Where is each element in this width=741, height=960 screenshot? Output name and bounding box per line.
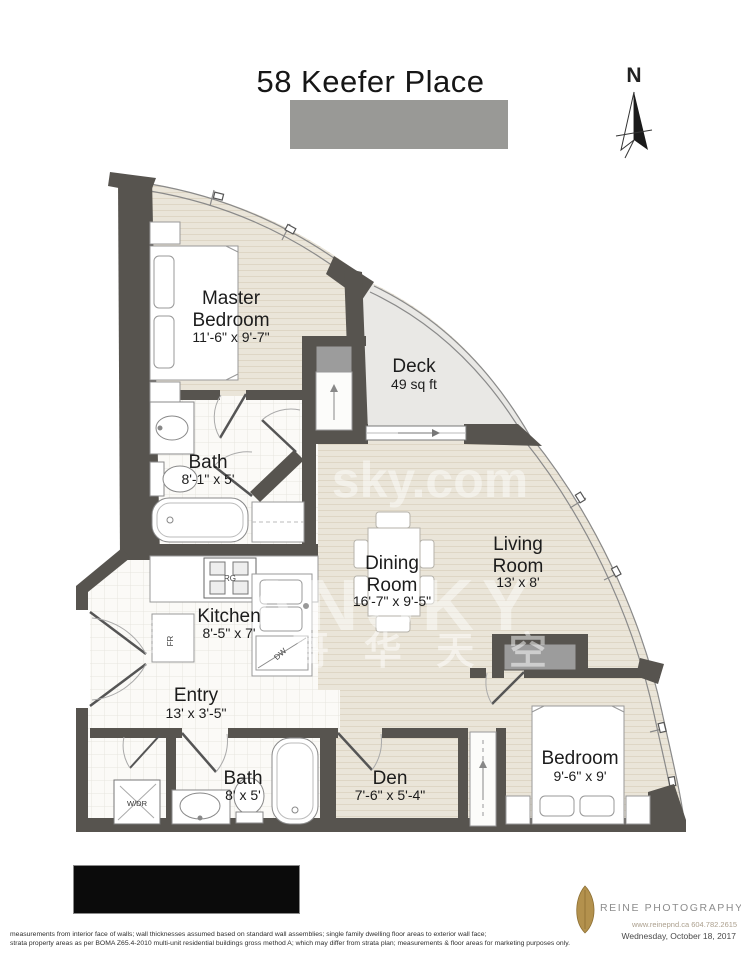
dining-room-label: Dining xyxy=(365,553,419,574)
logo-leaf-icon xyxy=(577,886,594,933)
kitchen-label: Kitchen xyxy=(197,606,260,627)
living-room-dims: 13' x 8' xyxy=(496,574,539,590)
bath1-dims: 8'-1" x 5' xyxy=(181,471,234,487)
disclaimer-line2: strata property areas as per BOMA Z65.4-… xyxy=(10,940,570,947)
bedroom-label: Bedroom xyxy=(541,748,618,769)
entry-door-opening xyxy=(74,610,90,708)
kitchen-dims: 8'-5" x 7' xyxy=(202,625,255,641)
living-room-label: Living xyxy=(493,534,543,555)
door-jamb xyxy=(76,598,88,610)
master-bedroom-label2: Bedroom xyxy=(192,310,269,331)
washer-dryer-label: W/DR xyxy=(127,799,148,808)
north-arrow: N xyxy=(616,64,652,158)
dining-room-dims: 16'-7" x 9'-5" xyxy=(353,593,431,609)
floor-plan-page: 58 Keefer Place xyxy=(0,0,741,960)
plan-date: Wednesday, October 18, 2017 xyxy=(621,931,736,941)
bottom-redaction-box xyxy=(73,865,300,914)
den-label: Den xyxy=(373,768,408,789)
deck-slider xyxy=(366,426,466,440)
bath2-label: Bath xyxy=(223,768,262,789)
bath2-dims: 8' x 5' xyxy=(225,787,261,803)
north-label: N xyxy=(626,64,641,87)
range-label: RG xyxy=(224,574,236,583)
fridge-label: FR xyxy=(166,635,175,646)
floor-plan-drawing: RG FR DW W/DR sky.com ANSKY 哥 华 天 空 Mast… xyxy=(0,0,741,960)
entry-label: Entry xyxy=(174,685,219,706)
master-bedroom-dims: 11'-6" x 9'-7" xyxy=(192,329,269,345)
deck-label: Deck xyxy=(392,356,436,377)
watermark-url: sky.com xyxy=(332,452,528,508)
master-bedroom-label: Master xyxy=(202,288,261,309)
bedroom-dims: 9'-6" x 9' xyxy=(553,768,606,784)
logo-name: REINE PHOTOGRAPHY & DESIGN xyxy=(600,902,741,914)
deck-floor xyxy=(352,270,528,434)
logo-contact: www.reinepnd.ca 604.782.2615 xyxy=(632,920,737,929)
entry-dims: 13' x 3'-5" xyxy=(166,705,227,721)
door-jamb xyxy=(76,708,88,720)
disclaimer-line1: measurements from interior face of walls… xyxy=(10,931,486,938)
watermark-cjk: 哥 华 天 空 xyxy=(291,631,559,673)
bath1-label: Bath xyxy=(188,452,227,473)
den-dims: 7'-6" x 5'-4" xyxy=(355,787,426,803)
deck-dims: 49 sq ft xyxy=(391,376,437,392)
